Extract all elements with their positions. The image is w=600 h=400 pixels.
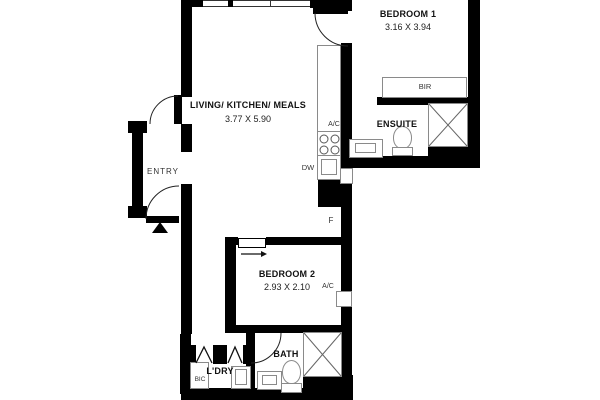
room-label-ensuite: ENSUITE	[367, 119, 427, 129]
ac-unit-bedroom2	[336, 291, 352, 307]
label-bir: BIR	[405, 82, 445, 91]
wall-kitchen-block	[318, 180, 343, 207]
label-ac-bedroom2: A/C	[316, 283, 340, 290]
window-mullion-thin	[270, 0, 271, 7]
bifold-chevron-bic	[196, 347, 212, 363]
slide-direction-arrow-icon	[241, 251, 267, 257]
label-bic: BIC	[191, 376, 209, 383]
label-dishwasher: DW	[298, 163, 318, 172]
bifold-chevron-laundry	[228, 347, 242, 363]
room-label-bedroom2: BEDROOM 2	[247, 269, 327, 279]
bath-vanity-basin	[262, 375, 277, 385]
bath-toilet-base	[281, 383, 302, 393]
wall-east-spine	[341, 43, 352, 397]
kitchen-bench	[317, 45, 341, 132]
plan-linework	[0, 0, 600, 400]
ac-unit-living	[340, 168, 353, 184]
ensuite-toilet-bowl	[393, 126, 412, 149]
door-swing-entry-front	[146, 186, 179, 219]
label-fridge: F	[324, 216, 338, 225]
room-label-bedroom1: BEDROOM 1	[368, 9, 448, 19]
bath-shower	[303, 332, 342, 377]
wall-outer-east	[468, 0, 480, 168]
label-ac-kitchen: A/C	[322, 121, 346, 128]
door-leaf-bedroom1	[313, 8, 348, 14]
sliding-door-panel-bedroom2	[238, 238, 266, 248]
wall-corridor-west	[181, 184, 192, 334]
room-label-entry: ENTRY	[138, 167, 188, 176]
ensuite-vanity-basin	[355, 143, 376, 153]
kitchen-dishwasher-inner	[321, 159, 337, 175]
wall-living-west-upper	[181, 0, 192, 97]
bifold-post-mid	[213, 345, 227, 364]
ensuite-toilet-base	[392, 147, 413, 156]
entry-pier-top	[128, 121, 147, 133]
entry-pier-bottom	[128, 206, 147, 218]
entry-direction-icon	[152, 222, 168, 233]
wall-living-west-mid	[181, 124, 192, 152]
door-swing-bedroom1	[315, 13, 348, 46]
room-dims-bedroom2: 2.93 X 2.10	[247, 282, 327, 292]
bath-toilet-bowl	[282, 360, 301, 384]
window-mullion	[228, 0, 233, 7]
kitchen-cooktop	[317, 131, 341, 156]
floor-plan: LIVING/ KITCHEN/ MEALS 3.77 X 5.90 BEDRO…	[0, 0, 600, 400]
wall-bedroom2-west	[225, 237, 236, 332]
window-top	[203, 0, 310, 7]
bifold-post-right	[243, 345, 247, 364]
room-dims-bedroom1: 3.16 X 3.94	[368, 22, 448, 32]
door-leaf-entry-front	[146, 216, 179, 223]
room-label-laundry: L'DRY	[200, 366, 240, 376]
ensuite-shower	[428, 103, 468, 147]
room-label-bath: BATH	[266, 349, 306, 359]
wall-bedroom2-north-right	[266, 237, 341, 245]
room-label-living: LIVING/ KITCHEN/ MEALS	[168, 100, 328, 110]
room-dims-living: 3.77 X 5.90	[198, 114, 298, 124]
